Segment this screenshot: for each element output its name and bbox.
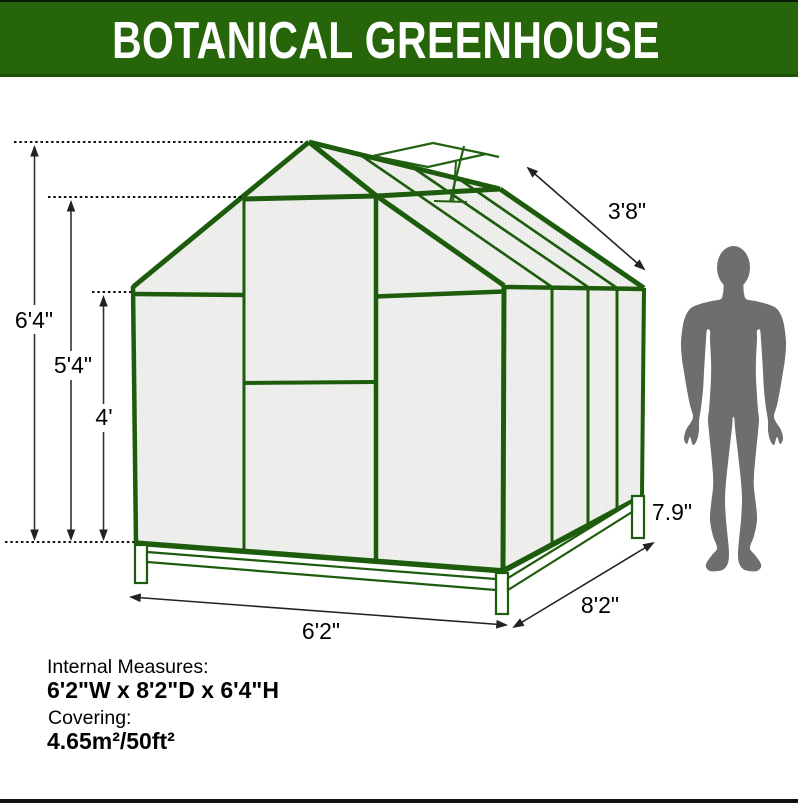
svg-text:6'2": 6'2" [302,618,340,644]
svg-text:5'4": 5'4" [54,352,92,378]
svg-text:4': 4' [95,404,112,430]
svg-text:3'8": 3'8" [608,198,646,224]
svg-text:7.9": 7.9" [652,499,692,525]
svg-text:8'2": 8'2" [581,592,619,618]
svg-text:6'4": 6'4" [15,307,53,333]
